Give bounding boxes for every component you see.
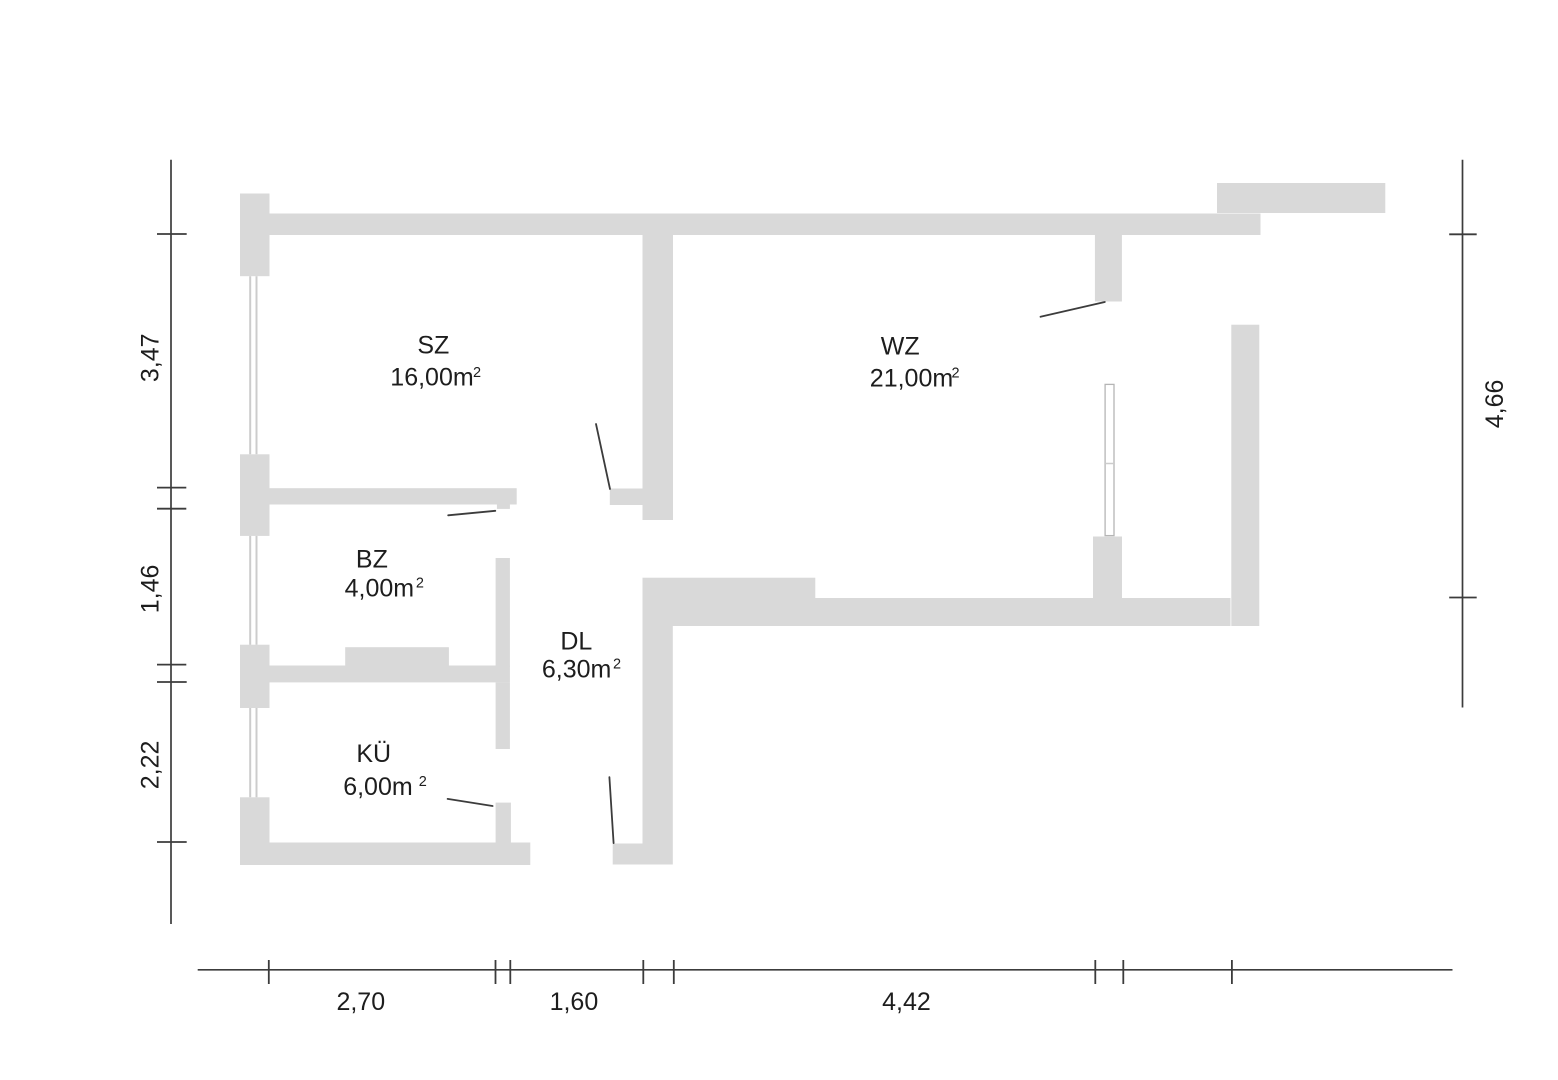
svg-text:2: 2 [473, 365, 481, 381]
svg-text:2: 2 [613, 657, 621, 673]
svg-text:21,00m: 21,00m [870, 364, 953, 392]
svg-text:6,00m: 6,00m [343, 773, 412, 801]
svg-text:3,47: 3,47 [136, 333, 164, 382]
svg-text:6,30m: 6,30m [542, 656, 611, 684]
svg-text:2: 2 [419, 774, 427, 790]
svg-text:4,42: 4,42 [882, 988, 931, 1016]
svg-text:WZ: WZ [881, 332, 920, 360]
svg-text:2: 2 [952, 366, 960, 382]
svg-text:1,46: 1,46 [136, 565, 164, 614]
svg-text:SZ: SZ [417, 332, 449, 360]
svg-text:4,00m: 4,00m [345, 574, 414, 602]
svg-text:2,70: 2,70 [336, 988, 385, 1016]
svg-text:DL: DL [560, 628, 592, 656]
svg-text:BZ: BZ [356, 545, 388, 573]
svg-text:2: 2 [416, 576, 424, 592]
svg-text:16,00m: 16,00m [390, 364, 473, 392]
svg-text:KÜ: KÜ [356, 740, 391, 768]
svg-text:2,22: 2,22 [136, 741, 164, 790]
svg-text:4,66: 4,66 [1481, 380, 1509, 429]
svg-text:1,60: 1,60 [550, 988, 599, 1016]
